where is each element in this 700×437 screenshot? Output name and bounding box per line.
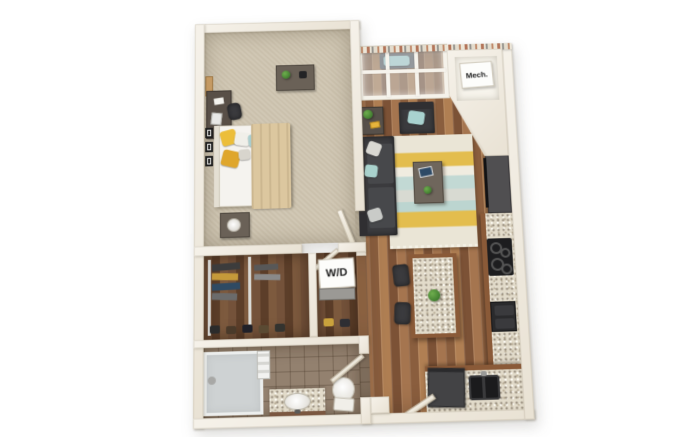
bar-stool bbox=[392, 264, 411, 287]
washer-dryer-base bbox=[319, 288, 356, 301]
exterior-wall-left bbox=[193, 24, 205, 429]
desk-chair bbox=[226, 102, 243, 121]
shoe-pair bbox=[340, 319, 350, 327]
bar-stool bbox=[394, 302, 411, 325]
armchair-back bbox=[399, 102, 434, 110]
floor-plan-canvas: W/D Mech. bbox=[0, 0, 700, 437]
shoe-pair bbox=[324, 318, 334, 326]
wall-bedroom-bottom-right bbox=[338, 242, 366, 253]
towel-shelf bbox=[257, 350, 271, 379]
dresser-speaker bbox=[299, 71, 307, 78]
mech-label: Mech. bbox=[465, 70, 488, 80]
water-heater-unit: Mech. bbox=[459, 61, 494, 89]
washer-dryer-unit: W/D bbox=[318, 257, 356, 289]
shoe-pair bbox=[242, 324, 252, 332]
wall-closet-laundry bbox=[308, 253, 318, 337]
burner bbox=[500, 248, 511, 258]
hanging-garment bbox=[254, 274, 280, 280]
wall-art-frame bbox=[205, 156, 213, 167]
refrigerator bbox=[428, 368, 465, 408]
wall-laundry-bath-stub bbox=[358, 335, 369, 354]
toilet-tank bbox=[333, 397, 355, 412]
shoe-pair bbox=[210, 325, 220, 333]
drawer-front bbox=[494, 305, 514, 316]
wall-art-frame bbox=[205, 128, 213, 138]
dresser bbox=[276, 64, 315, 91]
drawer-appliance bbox=[490, 301, 517, 332]
hanging-garment bbox=[212, 273, 238, 280]
shoe-pair bbox=[259, 325, 269, 333]
armchair-teal-pillow bbox=[407, 110, 425, 125]
vanity-faucet bbox=[294, 409, 300, 413]
drawer-front bbox=[495, 318, 515, 329]
closet-rail bbox=[208, 260, 211, 336]
bed-headboard bbox=[214, 126, 220, 208]
shoe-pair bbox=[275, 324, 285, 332]
shoe-pair bbox=[226, 326, 236, 334]
sink-divider bbox=[482, 377, 486, 398]
hanging-garment bbox=[212, 293, 238, 301]
wall-entry-stub bbox=[371, 396, 390, 413]
laptop bbox=[210, 112, 222, 125]
wd-label: W/D bbox=[326, 267, 348, 280]
faucet bbox=[481, 371, 487, 376]
wall-art-frame bbox=[205, 142, 213, 153]
pillow-gray bbox=[238, 149, 251, 160]
sofa-pillow-teal bbox=[364, 164, 378, 178]
throw-blanket bbox=[251, 123, 291, 209]
double-sink bbox=[468, 375, 500, 401]
cooktop bbox=[487, 238, 514, 276]
burner bbox=[501, 263, 513, 274]
apartment-floor-plan: W/D Mech. bbox=[193, 16, 535, 429]
closet-shelf bbox=[248, 257, 251, 329]
